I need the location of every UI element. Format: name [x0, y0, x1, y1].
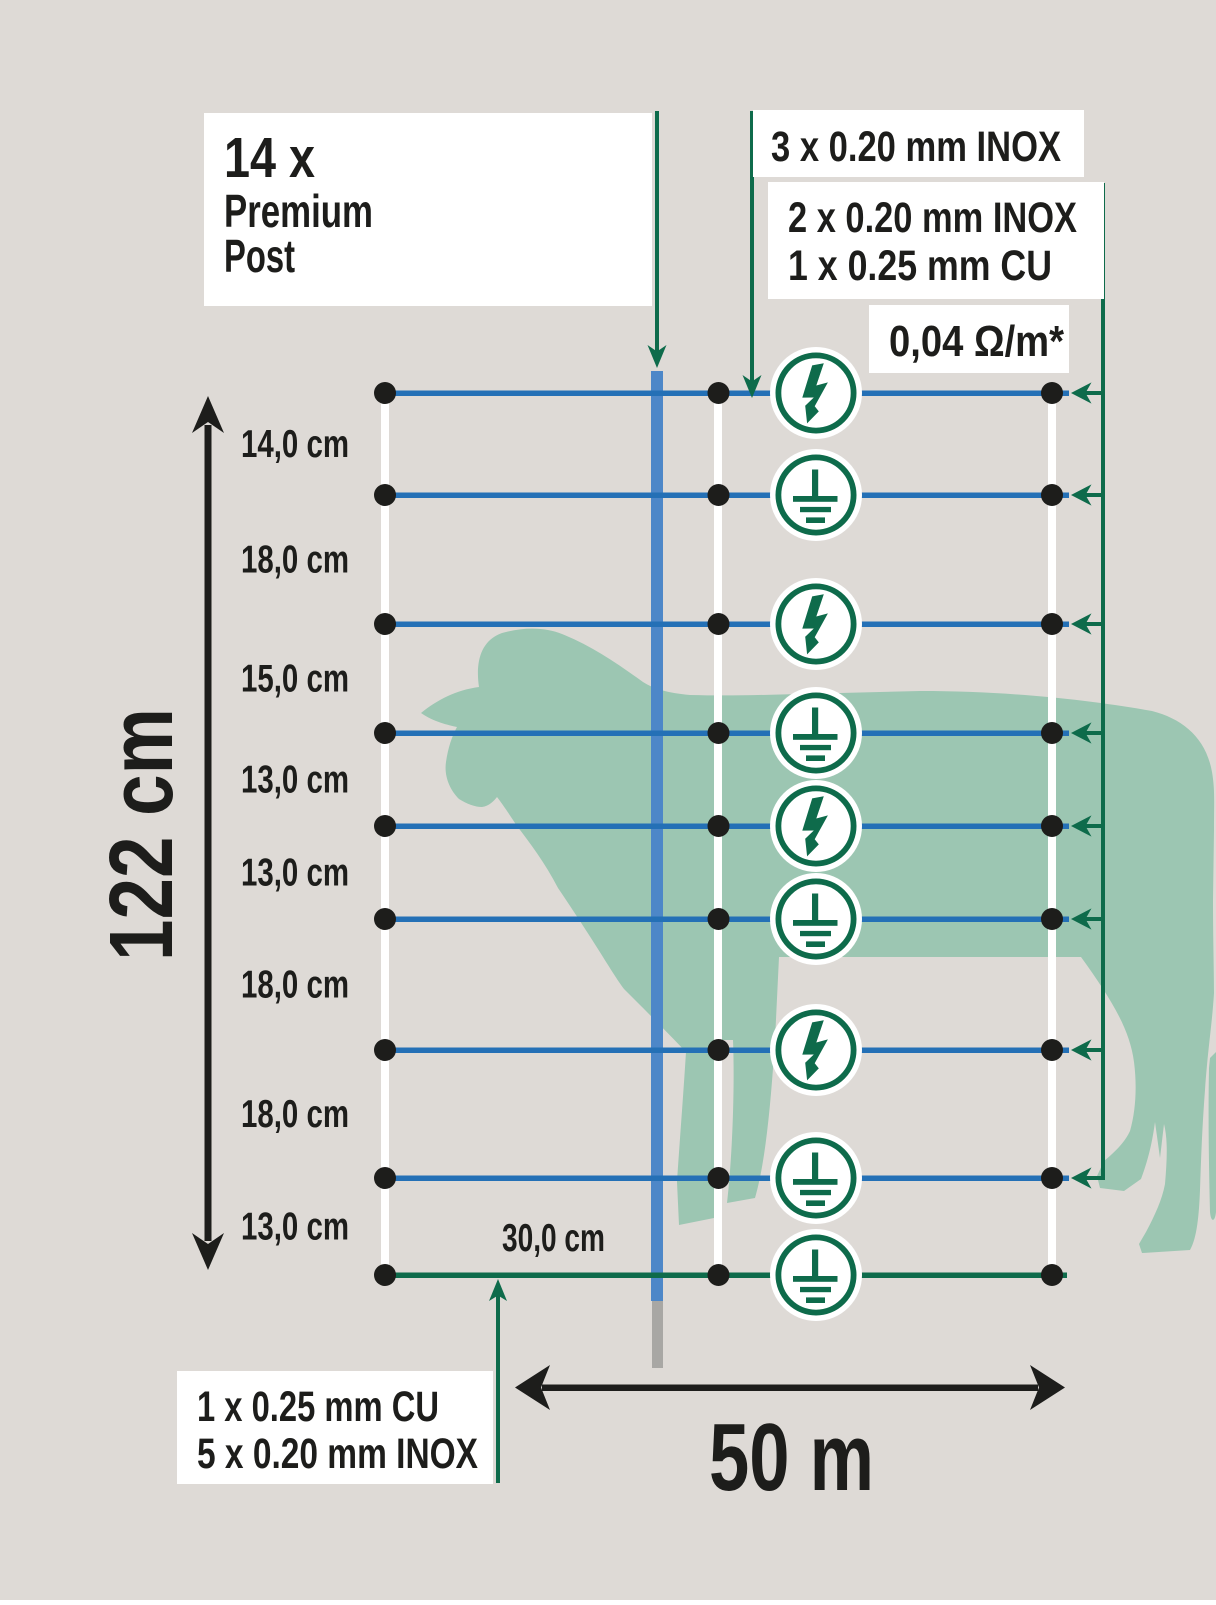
svg-text:5 x 0.20 mm INOX: 5 x 0.20 mm INOX — [197, 1430, 478, 1478]
svg-text:18,0 cm: 18,0 cm — [241, 964, 349, 1007]
svg-text:30,0 cm: 30,0 cm — [502, 1217, 605, 1260]
svg-text:18,0 cm: 18,0 cm — [241, 1093, 349, 1136]
svg-text:18,0 cm: 18,0 cm — [241, 539, 349, 582]
svg-text:13,0 cm: 13,0 cm — [241, 759, 349, 802]
svg-text:1 x 0.25 mm CU: 1 x 0.25 mm CU — [197, 1383, 439, 1431]
svg-text:50 m: 50 m — [709, 1404, 874, 1511]
svg-text:14,0 cm: 14,0 cm — [241, 423, 349, 466]
svg-text:0,04 Ω/m*: 0,04 Ω/m* — [889, 317, 1065, 366]
svg-text:3 x 0.20 mm INOX: 3 x 0.20 mm INOX — [771, 123, 1061, 171]
svg-text:15,0 cm: 15,0 cm — [241, 658, 349, 701]
svg-text:13,0 cm: 13,0 cm — [241, 1206, 349, 1249]
svg-text:2 x 0.20 mm INOX: 2 x 0.20 mm INOX — [788, 194, 1077, 242]
svg-text:Post: Post — [224, 230, 295, 282]
svg-text:122 cm: 122 cm — [92, 708, 192, 961]
svg-text:14 x: 14 x — [224, 126, 315, 190]
svg-text:13,0 cm: 13,0 cm — [241, 852, 349, 895]
svg-text:1 x 0.25 mm CU: 1 x 0.25 mm CU — [788, 242, 1052, 290]
